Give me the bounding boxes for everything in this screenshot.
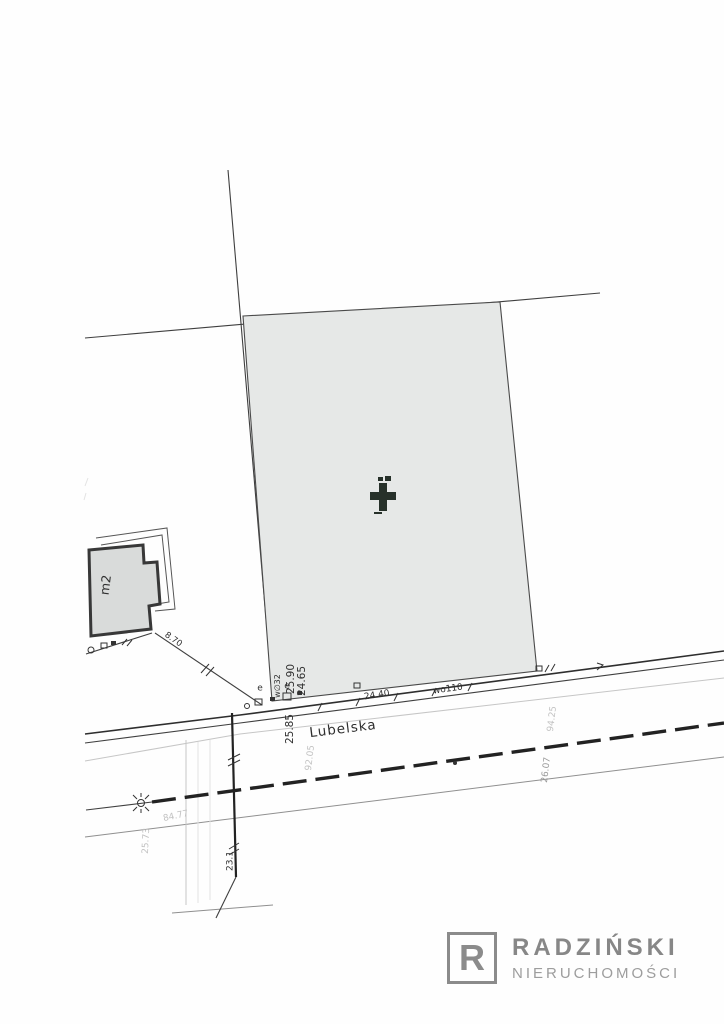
street-lines [85,651,724,913]
utility-label-w32: w∅32 [274,674,282,698]
utility-label-e-1: e [257,685,263,694]
cable-label-23-1: 23.1 [227,851,236,871]
utility-cable-line [216,713,240,918]
dimension-label-25-85: 25.85 [285,714,296,744]
company-logo: R RADZIŃSKI NIERUCHOMOŚCI [447,932,680,984]
dimension-label-24-65: 24.65 [297,666,308,696]
map-drawing [0,0,724,1024]
distance-label-25-73: 25.73 [142,828,152,854]
scanned-cadastral-map: Lubelska m2 25.90 24.65 25.85 24.40 wo11… [0,0,724,1024]
building-area-label: m2 [99,574,114,596]
logo-initial: R [459,937,485,979]
utility-label-e-2: e [284,683,290,692]
logo-r-mark-icon: R [447,932,497,984]
logo-text: RADZIŃSKI NIERUCHOMOŚCI [512,934,680,982]
logo-tagline: NIERUCHOMOŚCI [512,965,680,982]
building-shape [84,478,175,636]
parcel-shape [243,302,537,701]
logo-brand-name: RADZIŃSKI [512,934,680,962]
